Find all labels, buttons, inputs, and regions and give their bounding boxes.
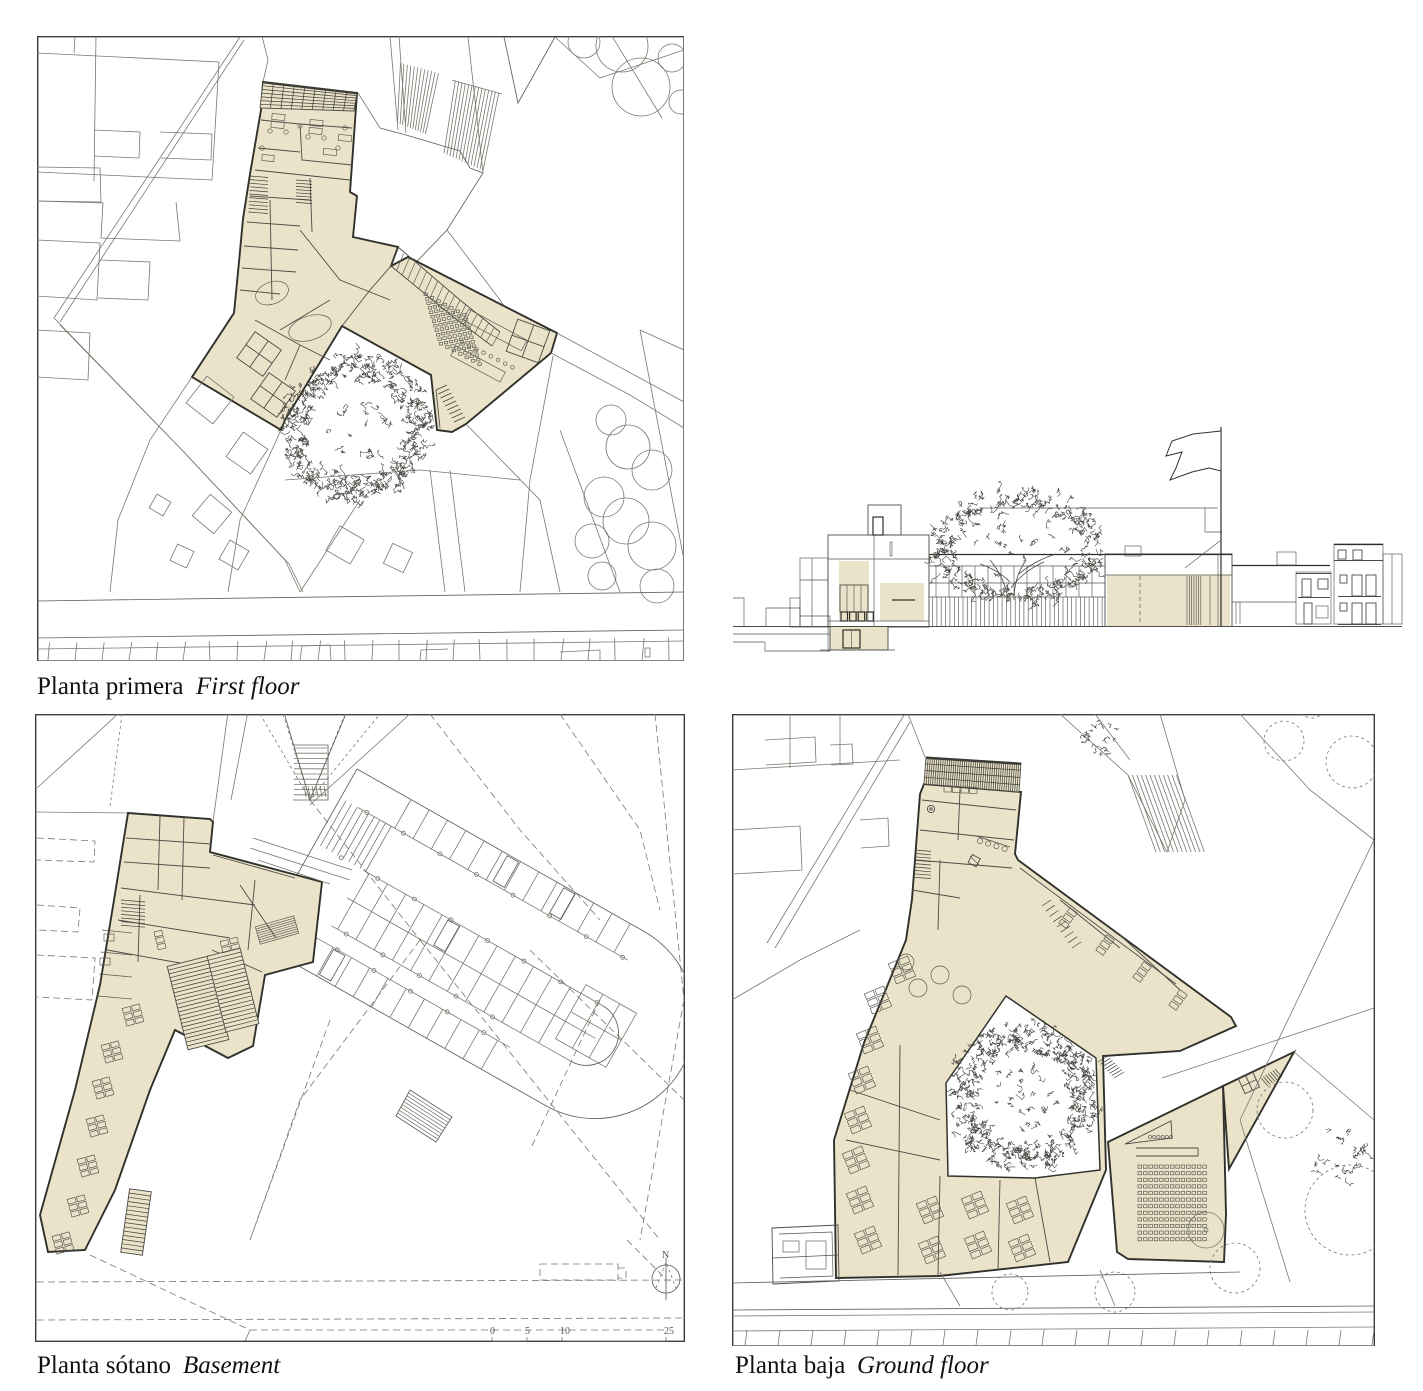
svg-text:Basement: Basement [183, 1352, 281, 1379]
svg-text:Ground floor: Ground floor [857, 1352, 989, 1379]
svg-text:N: N [662, 1250, 669, 1261]
svg-text:0: 0 [490, 1326, 495, 1337]
svg-text:5: 5 [525, 1326, 530, 1337]
svg-text:Planta primera: Planta primera [37, 673, 183, 700]
svg-text:25: 25 [664, 1326, 674, 1337]
svg-text:10: 10 [560, 1326, 570, 1337]
svg-text:First floor: First floor [195, 673, 300, 700]
svg-text:Planta baja: Planta baja [735, 1352, 845, 1379]
svg-text:Planta sótano: Planta sótano [37, 1352, 171, 1379]
